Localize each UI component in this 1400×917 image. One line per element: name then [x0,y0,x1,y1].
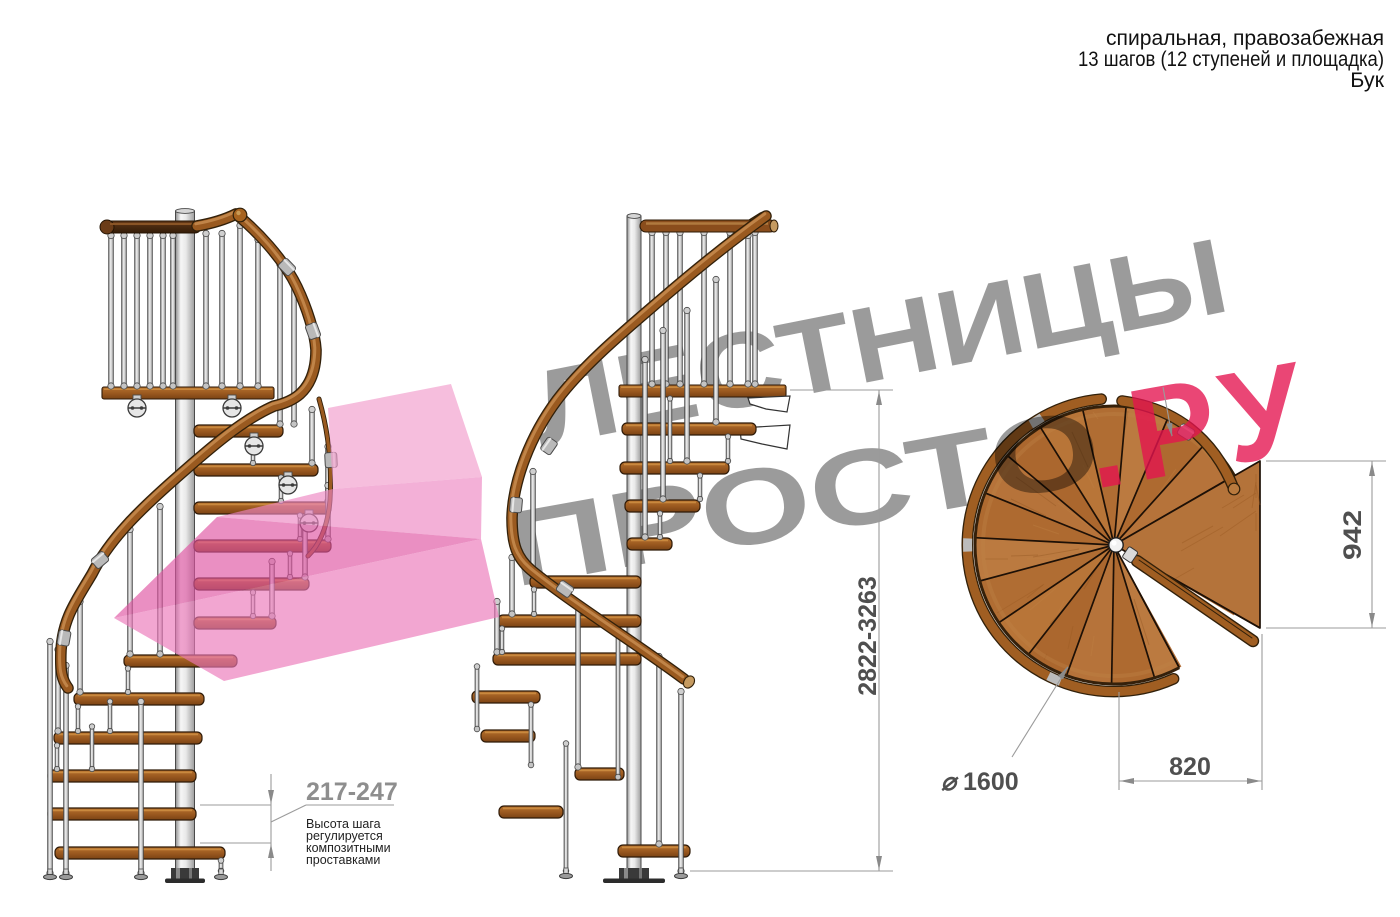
svg-text:проставками: проставками [306,853,380,867]
svg-text:13 шагов (12 ступеней и площад: 13 шагов (12 ступеней и площадка) [1078,47,1384,71]
svg-text:⌀ 1600: ⌀ 1600 [941,768,1019,796]
svg-text:820: 820 [1169,753,1211,781]
svg-text:942: 942 [1339,510,1367,560]
svg-text:217-247: 217-247 [306,778,398,806]
svg-text:Бук: Бук [1350,68,1384,92]
svg-text:2822-3263: 2822-3263 [854,576,882,696]
